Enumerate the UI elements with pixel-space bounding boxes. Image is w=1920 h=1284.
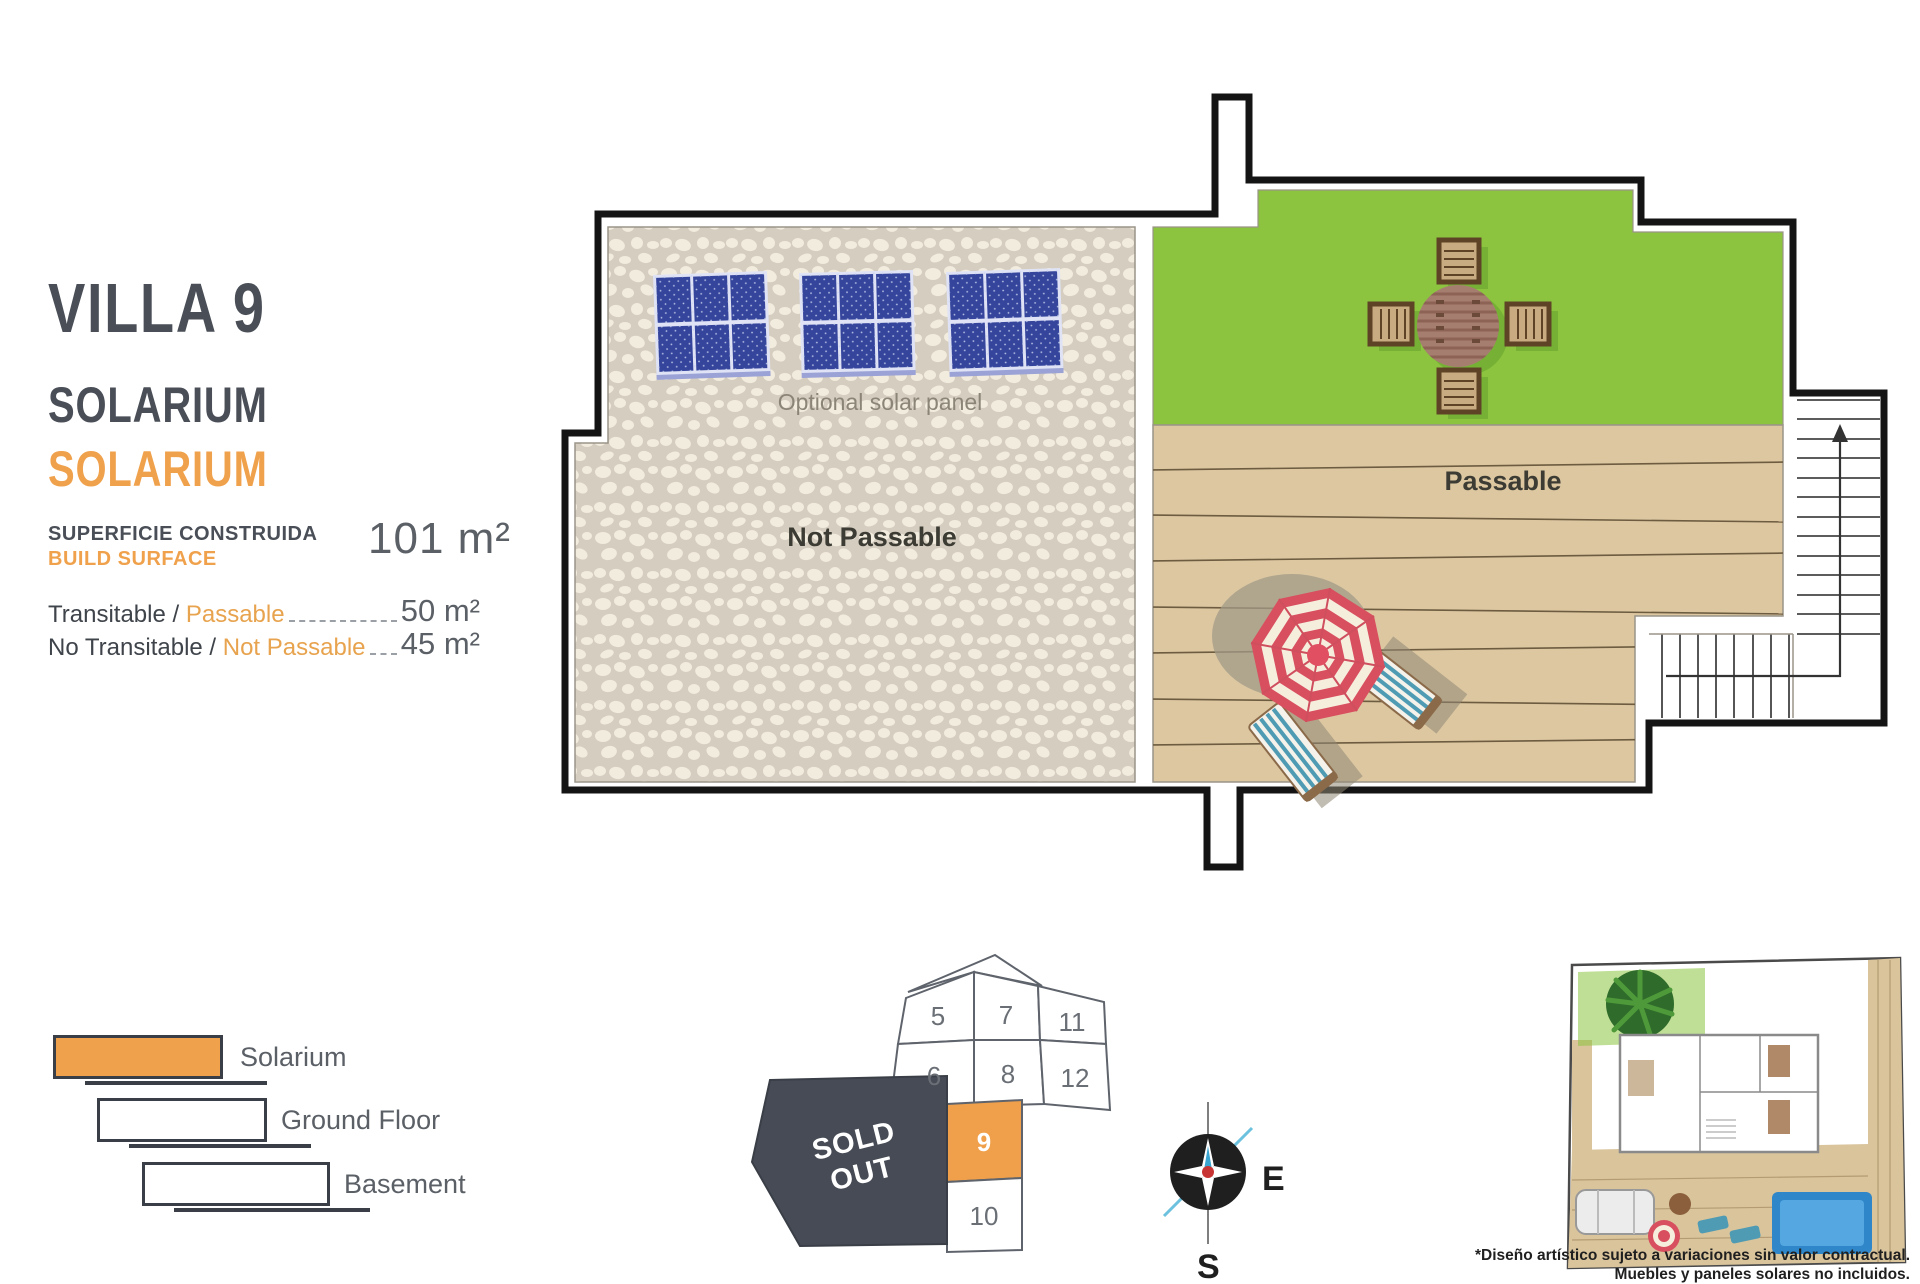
villa-footprint: [1620, 1035, 1818, 1152]
passable-label: Passable: [1444, 466, 1561, 496]
lot-5-label: 5: [931, 1001, 945, 1031]
legend-swatch-basement: [142, 1162, 330, 1206]
passable-row-value: 50 m²: [401, 593, 480, 629]
lot-9-label: 9: [977, 1127, 991, 1157]
palm-tree-icon: [1606, 970, 1674, 1038]
lot-map: [752, 955, 1110, 1252]
lot-10-label: 10: [970, 1201, 999, 1231]
dotted-leader: [289, 620, 397, 622]
disclaimer-text: *Diseño artístico sujeto a variaciones s…: [1110, 1246, 1910, 1284]
legend-shadow-line: [129, 1144, 311, 1148]
subtitle-solarium-primary: SOLARIUM: [48, 376, 268, 434]
surface-label-en: BUILD SURFACE: [48, 547, 317, 572]
passable-row-label-es: Transitable /: [48, 601, 186, 629]
compass-east-label: E: [1262, 1160, 1285, 1198]
not-passable-label: Not Passable: [787, 522, 957, 552]
site-pool: [1772, 1192, 1872, 1254]
legend-swatch-ground-floor: [97, 1098, 267, 1142]
passable-row-label-en: Passable: [186, 601, 285, 629]
measurement-rows: Transitable / Passable 50 m² No Transita…: [48, 596, 480, 662]
solar-panel-group: [653, 268, 1064, 380]
lot-12-label: 12: [1061, 1063, 1090, 1093]
not-passable-row-label-en: Not Passable: [223, 634, 366, 662]
surface-value: 101 m²: [368, 514, 511, 564]
not-passable-row: No Transitable / Not Passable 45 m²: [48, 629, 480, 662]
legend-label-ground-floor: Ground Floor: [281, 1105, 440, 1136]
legend-label-solarium: Solarium: [240, 1042, 347, 1073]
legend-swatch-solarium: [53, 1035, 223, 1079]
passable-row: Transitable / Passable 50 m²: [48, 596, 480, 629]
not-passable-row-value: 45 m²: [401, 626, 480, 662]
lot-7-label: 7: [999, 1000, 1013, 1030]
not-passable-row-label-es: No Transitable /: [48, 634, 223, 662]
lot-11-label: 11: [1059, 1007, 1086, 1037]
lot-8-label: 8: [1001, 1059, 1015, 1089]
dotted-leader: [370, 653, 397, 655]
legend-shadow-line: [174, 1208, 370, 1212]
subtitle-solarium-accent: SOLARIUM: [48, 440, 268, 498]
disclaimer-line1: *Diseño artístico sujeto a variaciones s…: [1110, 1246, 1910, 1265]
build-surface-block: SUPERFICIE CONSTRUIDA BUILD SURFACE: [48, 522, 317, 572]
site-plan-thumbnail: [1568, 958, 1905, 1268]
villa-title: VILLA 9: [48, 268, 266, 348]
legend-shadow-line: [85, 1081, 267, 1085]
optional-solar-label: Optional solar panel: [778, 389, 983, 415]
disclaimer-line2: Muebles y paneles solares no incluidos.: [1110, 1265, 1910, 1284]
surface-label-es: SUPERFICIE CONSTRUIDA: [48, 522, 317, 547]
lot-6-label: 6: [927, 1061, 941, 1091]
legend-label-basement: Basement: [344, 1169, 466, 1200]
site-car: [1576, 1190, 1654, 1234]
